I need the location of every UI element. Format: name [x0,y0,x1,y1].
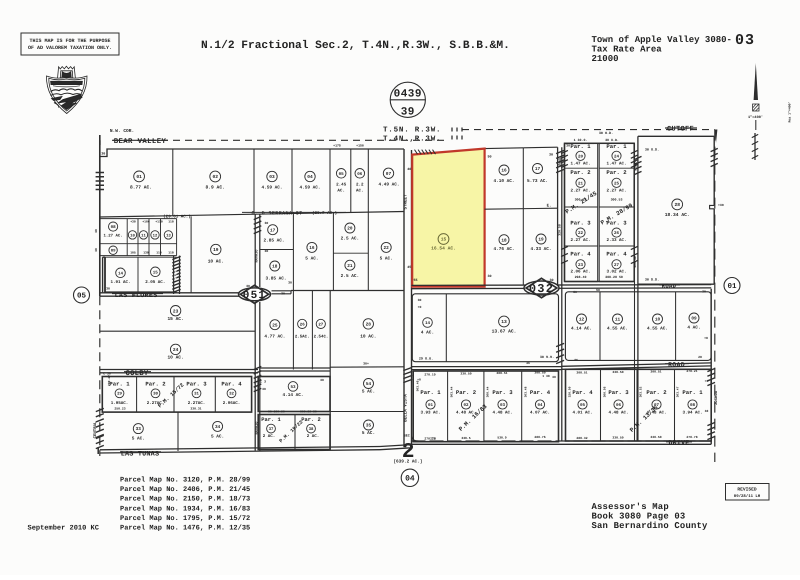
svg-text:5.73 AC.: 5.73 AC. [527,179,548,184]
svg-text:Par. 2: Par. 2 [646,389,667,396]
svg-text:16: 16 [309,246,315,251]
svg-text:T.4N.,R.3W.: T.4N.,R.3W. [383,134,441,143]
svg-text:28: 28 [674,202,680,208]
svg-text:02: 02 [212,174,218,180]
svg-text:September 2010 KC: September 2010 KC [28,524,99,533]
svg-text:30 D.D.: 30 D.D. [645,278,659,283]
svg-text:19: 19 [538,238,544,243]
svg-text:30: 30 [288,281,292,285]
svg-text:15: 15 [153,270,159,275]
svg-text:Par. 2: Par. 2 [456,389,477,396]
svg-text:32: 32 [229,392,234,397]
svg-text:4.14 AC.: 4.14 AC. [282,393,303,398]
svg-text:30 200.23: 30 200.23 [268,410,285,414]
svg-text:10: 10 [655,318,661,323]
svg-text:303.52: 303.52 [640,386,643,397]
svg-text:530.9: 530.9 [497,435,506,439]
svg-text:ROAD: ROAD [662,282,677,289]
svg-text:2 AC.: 2 AC. [307,434,320,439]
svg-text:5 AC.: 5 AC. [380,257,393,262]
svg-text:Parcel Map No. 1795, P.M. 15/7: Parcel Map No. 1795, P.M. 15/72 [120,514,250,523]
svg-text:1 30: 1 30 [542,374,550,378]
svg-text:JOSHUA: JOSHUA [714,390,719,405]
svg-text:Rea 1"=400': Rea 1"=400' [788,101,792,122]
svg-text:320.50: 320.50 [569,386,572,397]
svg-text:01: 01 [428,403,434,408]
svg-text:06: 06 [616,403,622,408]
svg-text:18: 18 [272,265,278,270]
svg-text:27: 27 [318,322,323,327]
svg-text:Par. 2: Par. 2 [301,417,320,423]
svg-text:31: 31 [194,392,199,397]
svg-text:30: 30 [94,248,98,252]
svg-text:30 O.D.: 30 O.D. [645,148,659,153]
svg-text:2.54C.: 2.54C. [314,335,329,340]
svg-text:Parcel Map No. 1934, P.M. 16/8: Parcel Map No. 1934, P.M. 16/83 [120,504,250,513]
svg-text:250.23: 250.23 [114,407,125,411]
svg-text:2.05 AC.: 2.05 AC. [145,280,165,285]
svg-text:15: 15 [441,237,447,243]
svg-text:30+: 30+ [363,362,369,366]
svg-text:21: 21 [578,181,584,186]
svg-text:270.21: 270.21 [686,369,697,373]
svg-text:300.44: 300.44 [487,386,490,397]
svg-text:STREET: STREET [403,194,408,210]
svg-text:Par. 4: Par. 4 [606,250,627,257]
svg-text:330.50: 330.50 [650,435,661,439]
svg-text:38: 38 [309,427,314,432]
svg-text:Par. 3: Par. 3 [570,219,591,226]
svg-text:Par. 4: Par. 4 [572,389,593,396]
svg-text:07: 07 [386,171,392,177]
svg-text:33: 33 [136,427,142,432]
svg-text:4.49 AC.: 4.49 AC. [378,182,399,187]
svg-text:1.27 AC.: 1.27 AC. [103,234,122,239]
svg-text:Tax Rate Area: Tax Rate Area [592,45,663,55]
svg-text:22: 22 [384,246,390,251]
svg-text:30 O.D.: 30 O.D. [599,131,613,136]
svg-text:Par. 3: Par. 3 [608,389,629,396]
svg-text:4.07 AC.: 4.07 AC. [530,410,550,415]
svg-text:300.51: 300.51 [496,371,507,375]
svg-text:10 AC.: 10 AC. [167,355,183,361]
svg-text:4.76 AC.: 4.76 AC. [493,247,514,252]
svg-text:5 AC.: 5 AC. [362,431,375,436]
svg-text:20: 20 [347,227,353,232]
svg-text:25: 25 [272,323,278,328]
svg-text:30: 30 [566,144,570,148]
svg-text:+150: +150 [356,144,364,148]
svg-text:30: 30 [101,152,105,157]
svg-text:2.85 AC.: 2.85 AC. [263,239,284,244]
svg-text:Par. 1: Par. 1 [261,417,280,423]
svg-text:+30: +30 [718,203,724,207]
svg-text:05: 05 [77,292,87,301]
svg-text:21: 21 [347,264,353,269]
svg-text:18.34 AC.: 18.34 AC. [665,212,690,218]
svg-text:330.50: 330.50 [612,370,623,374]
svg-text:30: 30 [487,274,491,279]
svg-text:4.77 AC.: 4.77 AC. [264,335,285,340]
svg-text:26: 26 [300,322,305,327]
svg-text:2.5AC.: 2.5AC. [295,335,310,340]
svg-text:320.48: 320.48 [633,256,637,268]
svg-text:04: 04 [307,174,313,180]
svg-text:30: 30 [106,287,110,291]
svg-text:110: 110 [168,219,174,223]
svg-text:Par. 3: Par. 3 [186,380,207,387]
svg-text:ROAD: ROAD [668,362,685,369]
svg-text:290.27: 290.27 [107,375,111,386]
svg-text:2.5 AC.: 2.5 AC. [341,274,359,279]
svg-text:2.06AC.: 2.06AC. [223,401,241,406]
svg-text:270.22: 270.22 [424,436,435,440]
svg-text:2.27AC.: 2.27AC. [188,401,206,406]
svg-text:30: 30 [549,153,553,158]
svg-text:AC.: AC. [337,189,345,194]
svg-text:303.48: 303.48 [525,386,528,397]
svg-text:THIS MAP IS FOR THE PURPOSE: THIS MAP IS FOR THE PURPOSE [29,38,110,44]
svg-text:8.9 AC.: 8.9 AC. [206,185,225,191]
svg-text:BEAR VALLEY: BEAR VALLEY [114,138,167,146]
svg-text:1.95AC.: 1.95AC. [111,401,129,406]
svg-text:4.55 AC.: 4.55 AC. [607,327,628,332]
svg-text:01: 01 [136,174,142,180]
svg-text:09: 09 [111,249,116,254]
svg-text:13.67 AC.: 13.67 AC. [492,329,517,335]
svg-text:26: 26 [614,231,620,236]
svg-text:300.51: 300.51 [650,369,661,373]
svg-text:05: 05 [580,403,586,408]
svg-text:Assessor's Map: Assessor's Map [592,502,669,512]
svg-text:110: 110 [168,250,174,254]
svg-text:BELLA VISTA: BELLA VISTA [403,394,408,422]
svg-text:270.19: 270.19 [424,372,435,376]
svg-text:03: 03 [735,32,755,49]
svg-text:04: 04 [405,475,415,484]
svg-text:2.27 AC.: 2.27 AC. [570,238,590,243]
svg-text:REVISED: REVISED [737,487,757,493]
svg-text:320.58: 320.58 [557,224,561,236]
svg-text:110: 110 [156,250,162,254]
svg-text:21000: 21000 [592,54,619,64]
svg-text:CUTOFF: CUTOFF [667,126,694,134]
svg-text:1.47 AC.: 1.47 AC. [570,161,590,166]
svg-text:14: 14 [425,321,431,326]
svg-text:130: 130 [143,250,149,254]
svg-text:Parcel Map No. 3120, P.M. 28/9: Parcel Map No. 3120, P.M. 28/99 [120,476,250,485]
svg-text:300.53: 300.53 [611,198,623,202]
svg-text:1"=400': 1"=400' [748,115,763,120]
svg-text:13: 13 [501,319,507,325]
svg-text:4.59 AC.: 4.59 AC. [299,186,320,191]
svg-text:503.44: 503.44 [451,386,454,397]
svg-text:25: 25 [614,181,620,186]
svg-text:1 30.0.: 1 30.0. [574,138,588,142]
svg-text:54: 54 [366,382,372,387]
svg-text:30: 30 [320,378,324,382]
svg-text:30: 30 [246,284,250,288]
svg-text:Par. 2: Par. 2 [606,169,627,176]
svg-text:10: 10 [130,233,135,238]
svg-text:4.48 AC.: 4.48 AC. [492,410,512,415]
svg-text:15 AC.: 15 AC. [167,316,183,322]
svg-text:30: 30 [153,392,158,397]
svg-text:20: 20 [578,154,584,159]
svg-text:1.47 AC.: 1.47 AC. [606,161,626,166]
svg-text:50: 50 [487,155,491,160]
svg-text:23: 23 [173,308,179,314]
svg-text:11: 11 [141,233,146,238]
svg-text:105: 105 [130,250,136,254]
svg-text:30: 30 [281,292,285,296]
svg-text:Par. 3: Par. 3 [492,389,513,396]
svg-text:12: 12 [153,233,158,238]
svg-text:04: 04 [537,403,543,408]
svg-text:330.5: 330.5 [461,436,470,440]
svg-text:3.94 AC.: 3.94 AC. [682,410,702,415]
svg-text:DRIVE: DRIVE [668,440,689,447]
svg-text:3.85 AC.: 3.85 AC. [265,277,286,282]
svg-text:03: 03 [500,403,506,408]
svg-text:2 AC.: 2 AC. [263,434,276,439]
svg-text:4.10 AC.: 4.10 AC. [493,179,514,184]
svg-text:Par. 4: Par. 4 [570,250,591,257]
svg-text:01: 01 [727,282,737,291]
svg-text:35: 35 [366,424,372,429]
svg-text:18: 18 [501,238,507,243]
svg-text:298.40: 298.40 [575,275,587,279]
svg-text:NAVAJO: NAVAJO [254,249,259,263]
svg-text:09/28/11 LH: 09/28/11 LH [734,494,761,499]
svg-text:16: 16 [501,169,507,174]
svg-text:12: 12 [579,318,585,323]
svg-text:45: 45 [407,265,411,270]
svg-text:34: 34 [215,425,221,430]
svg-text:30: 30 [94,229,98,233]
svg-text:29: 29 [117,392,122,397]
svg-text:4.48 AC.: 4.48 AC. [608,410,628,415]
svg-text:+0: +0 [704,336,708,340]
svg-text:SEC: SEC [404,434,410,439]
svg-text:30: 30 [265,221,269,225]
svg-text:4.01 AC.: 4.01 AC. [572,410,592,415]
svg-text:Par. 4: Par. 4 [221,380,242,387]
svg-text:503.46: 503.46 [417,380,420,391]
svg-text:Par. 1: Par. 1 [682,389,703,396]
svg-text:300.20 50: 300.20 50 [605,275,623,279]
svg-text:11: 11 [615,318,621,323]
svg-text:4.55 AC.: 4.55 AC. [647,327,668,332]
svg-text:28: 28 [366,322,372,328]
svg-text:C 30: C 30 [103,372,111,376]
svg-text:2.27 AC.: 2.27 AC. [606,189,626,194]
svg-text:2.27 AC.: 2.27 AC. [570,189,590,194]
svg-text:300.56: 300.56 [604,386,607,397]
svg-text:30: 30 [418,298,422,302]
svg-text:051: 051 [243,290,266,302]
svg-text:280.32: 280.32 [576,436,587,440]
svg-text:N.1/2 Fractional Sec.2, T.4N.,: N.1/2 Fractional Sec.2, T.4N.,R.3W., S.B… [201,39,510,52]
svg-text:+100: +100 [142,219,150,223]
svg-text:08: 08 [690,403,696,408]
svg-text:2.2: 2.2 [356,183,364,188]
svg-text:1.91 AC.: 1.91 AC. [110,280,130,285]
svg-text:300.23 30: 300.23 30 [300,410,317,414]
svg-text:+175: +175 [333,144,341,148]
svg-text:02: 02 [463,403,469,408]
svg-text:2.33 AC.: 2.33 AC. [606,238,626,243]
svg-text:24: 24 [614,154,620,159]
svg-text:20: 20 [702,290,706,294]
svg-text:[639.2 AC.]: [639.2 AC.] [393,459,422,465]
svg-text:40: 40 [407,167,411,172]
svg-text:39: 39 [401,107,415,119]
svg-text:17: 17 [270,228,276,233]
svg-text:4.33 AC.: 4.33 AC. [530,247,551,252]
svg-text:06: 06 [357,172,363,177]
svg-text:4.14 AC.: 4.14 AC. [571,327,592,332]
svg-text:San Bernardino County: San Bernardino County [592,521,709,531]
svg-text:22: 22 [578,231,584,236]
svg-text:30: 30 [705,409,709,413]
svg-text:Parcel Map No. 1476, P.M. 12/3: Parcel Map No. 1476, P.M. 12/35 [120,524,250,533]
svg-text:2.45: 2.45 [336,183,347,188]
svg-text:CENTRAL: CENTRAL [93,421,98,438]
svg-text:+0: +0 [705,379,709,383]
svg-text:+110: +110 [155,219,163,223]
svg-text:KIOWA: KIOWA [174,268,179,279]
svg-text:280.76: 280.76 [534,435,545,439]
svg-text:5 AC.: 5 AC. [305,257,318,262]
svg-text:Par. 2: Par. 2 [570,169,591,176]
svg-text:08: 08 [111,225,117,230]
svg-text:3.93 AC.: 3.93 AC. [420,410,440,415]
svg-text:330.31: 330.31 [190,407,201,411]
svg-text:Par. 1: Par. 1 [420,389,441,396]
svg-text:+30: +30 [130,219,136,223]
svg-text:2.5 AC.: 2.5 AC. [341,237,359,242]
svg-text:4 AC.: 4 AC. [687,326,700,331]
svg-text:8.77 AC.: 8.77 AC. [130,185,152,191]
svg-text:17: 17 [535,167,541,172]
svg-text:10 AC.: 10 AC. [360,334,376,340]
svg-text:30 9.9.: 30 9.9. [540,355,554,360]
svg-text:03: 03 [269,174,275,180]
svg-text:5 AC.: 5 AC. [132,437,145,442]
svg-text:16.54 AC.: 16.54 AC. [431,246,456,252]
svg-text:E.: E. [547,204,552,209]
svg-text:05: 05 [339,172,345,177]
svg-text:Town of Apple Valley 3080-: Town of Apple Valley 3080- [592,35,732,45]
svg-text:23: 23 [578,263,584,268]
svg-text:303.47: 303.47 [677,386,680,397]
svg-text:Par. 2: Par. 2 [145,380,166,387]
svg-text:09: 09 [691,317,697,322]
svg-text:10 AC.: 10 AC. [208,259,224,265]
svg-text:AC.: AC. [356,189,364,194]
svg-text:C 3: C 3 [260,379,266,383]
svg-text:5 AC.: 5 AC. [362,390,375,395]
svg-text:13: 13 [166,233,171,238]
svg-text:330.50: 330.50 [460,371,471,375]
svg-text:300.51: 300.51 [576,370,587,374]
svg-text:30 O.D.: 30 O.D. [605,138,619,142]
svg-text:0439: 0439 [394,89,422,101]
svg-text:37: 37 [269,427,274,432]
svg-text:5 AC.: 5 AC. [211,435,224,440]
svg-text:4.59 AC.: 4.59 AC. [261,186,282,191]
svg-text:300.52: 300.52 [575,198,587,202]
svg-text:19: 19 [213,247,219,253]
svg-text:55: 55 [413,278,417,283]
svg-text:30: 30 [552,375,556,379]
svg-text:OF AD VALOREM TAXATION ONLY.: OF AD VALOREM TAXATION ONLY. [28,45,112,51]
svg-text:C. D SERRANA ST: C. D SERRANA ST [251,211,302,217]
svg-text:330.50: 330.50 [612,436,623,440]
svg-text:N.W. COR.: N.W. COR. [110,128,134,134]
svg-text:4 AC.: 4 AC. [421,331,434,336]
svg-text:Par. 1: Par. 1 [109,380,130,387]
svg-text:20: 20 [698,355,702,359]
svg-text:T.5N. R.3W.: T.5N. R.3W. [383,125,441,134]
svg-text:Parcel Map No. 2406, P.M. 21/4: Parcel Map No. 2406, P.M. 21/45 [120,485,250,494]
svg-text:29 O.G.: 29 O.G. [419,356,433,361]
svg-text:30: 30 [262,387,266,391]
svg-text:+0: +0 [418,305,422,309]
svg-text:270.78: 270.78 [686,435,697,439]
svg-text:53: 53 [290,385,296,390]
svg-text:Par. 4: Par. 4 [530,389,551,396]
svg-text:14: 14 [118,271,124,276]
svg-text:24: 24 [173,347,179,353]
svg-text:27: 27 [614,263,620,268]
svg-text:Parcel Map No. 2150, P.M. 18/7: Parcel Map No. 2150, P.M. 18/73 [120,495,250,504]
